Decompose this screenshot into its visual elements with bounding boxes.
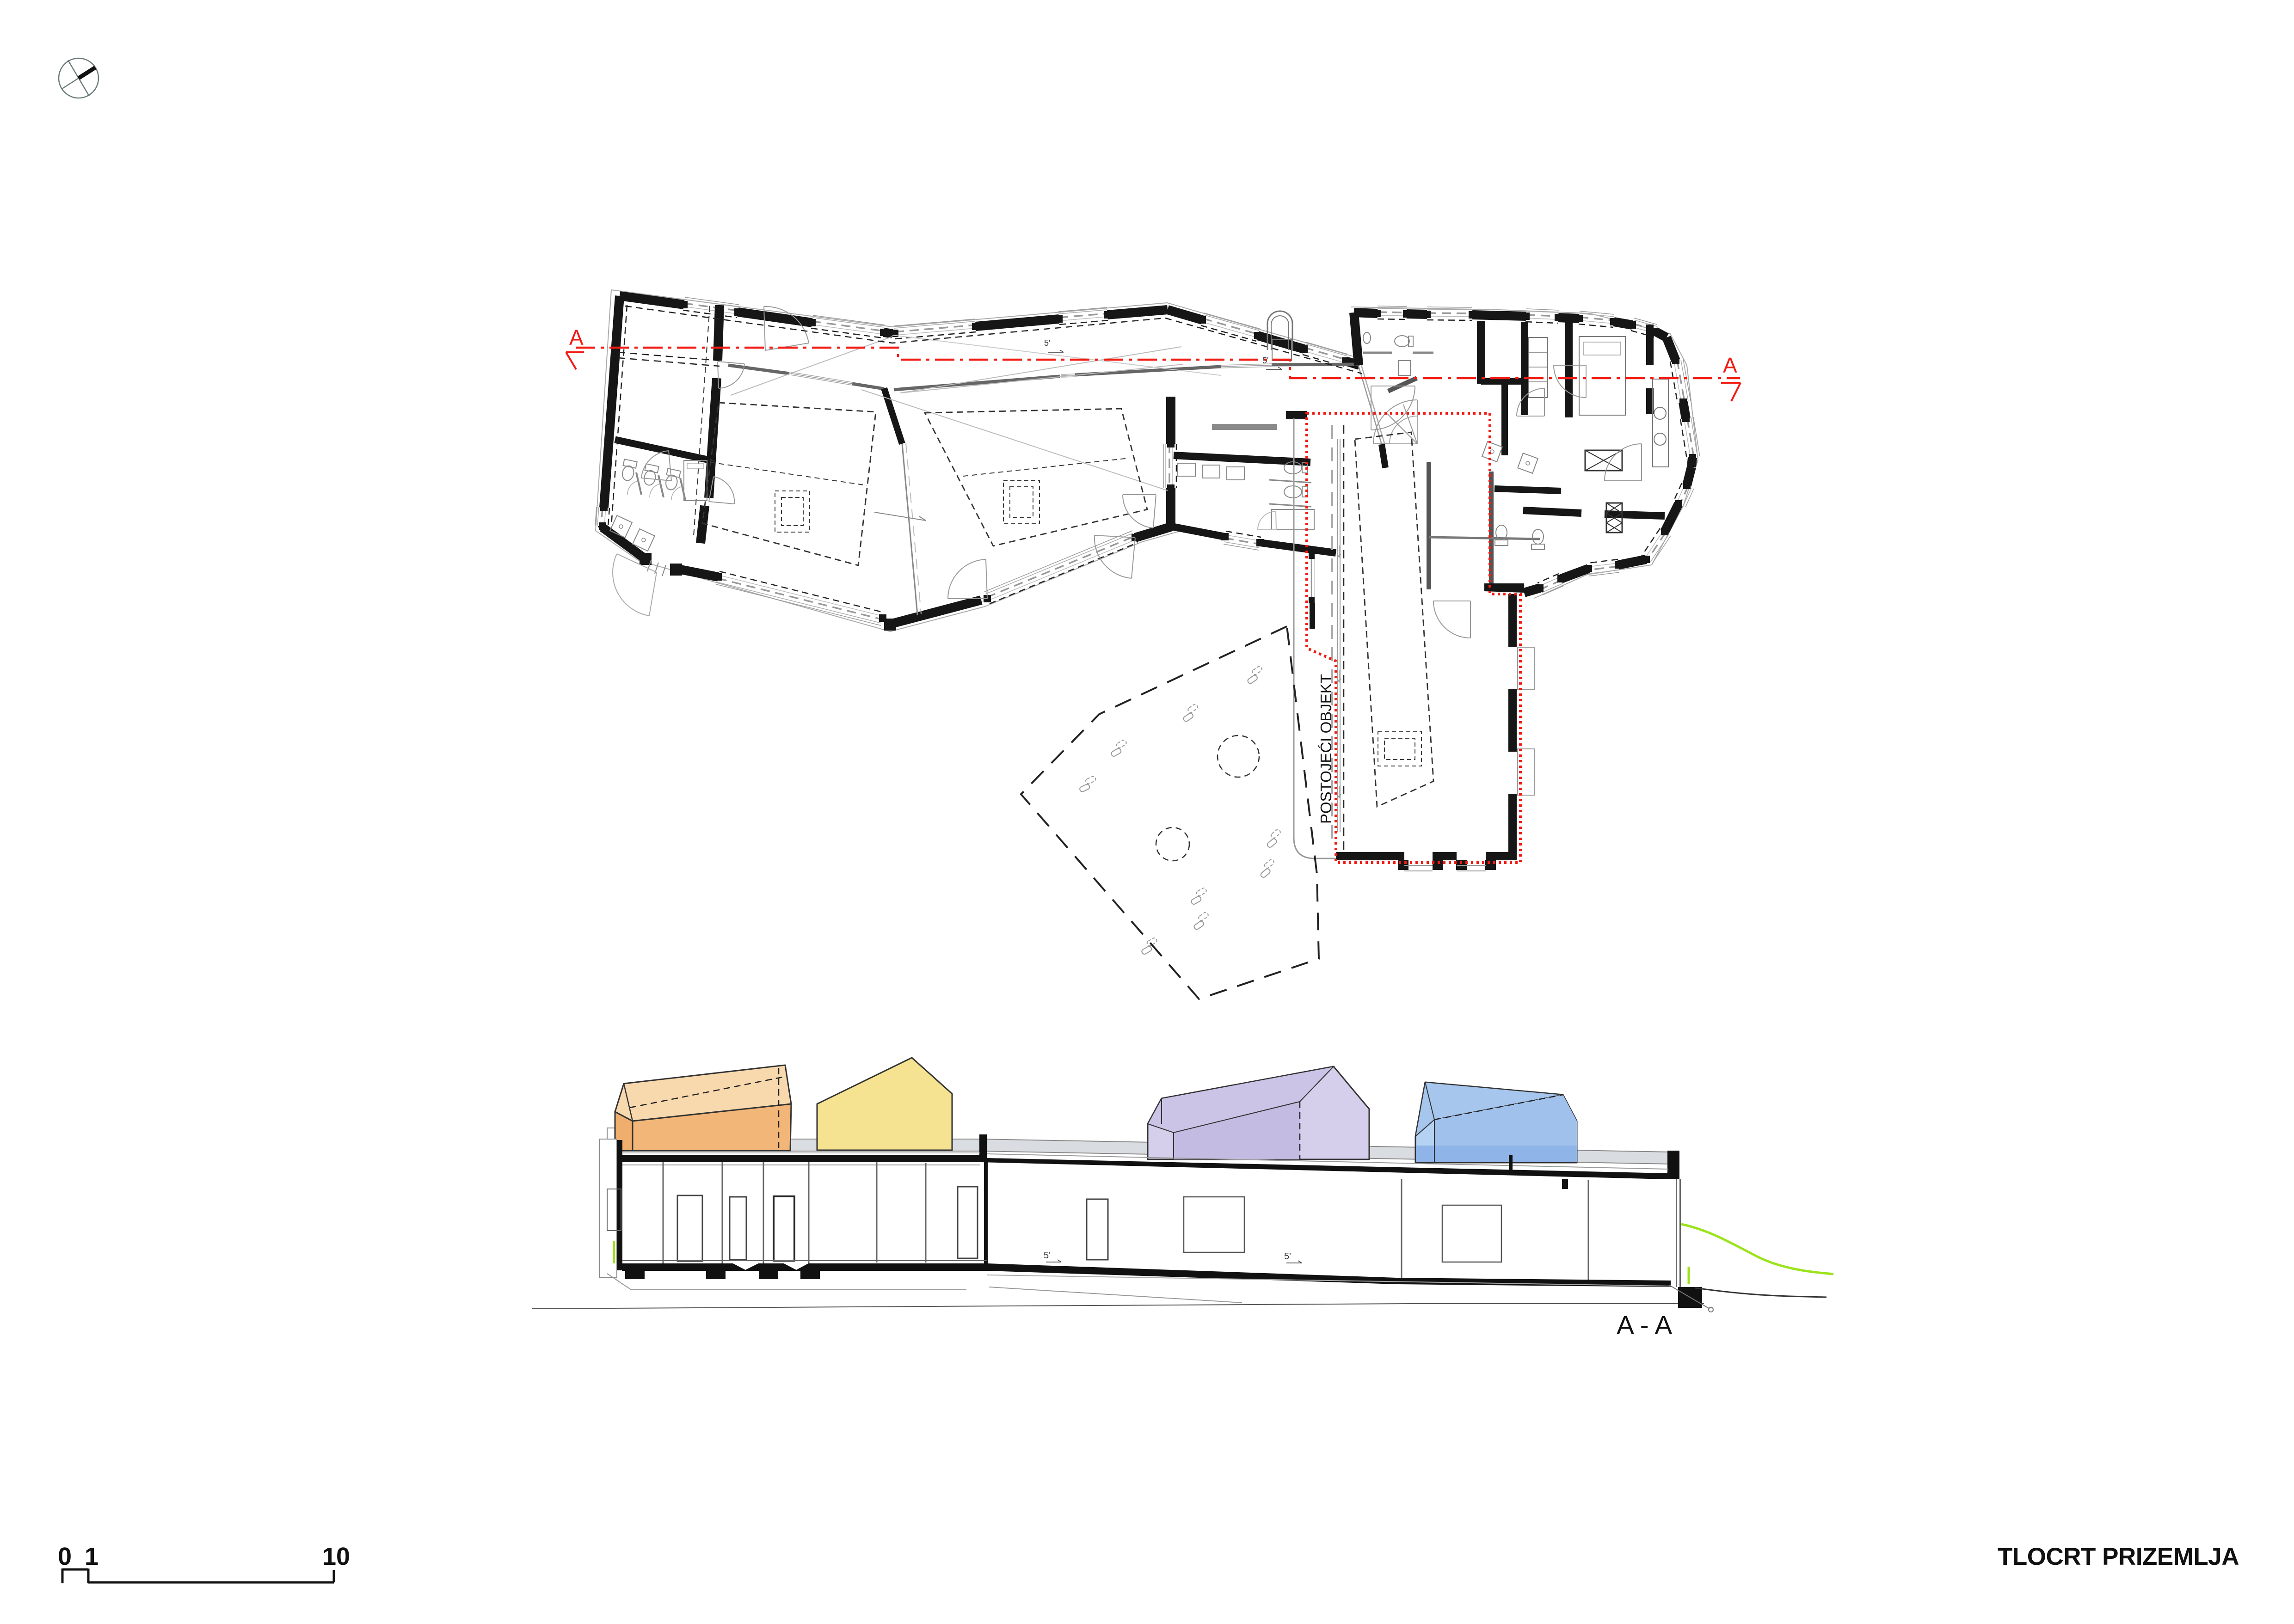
- svg-text:5': 5': [1262, 356, 1268, 365]
- svg-text:10: 10: [322, 1543, 350, 1570]
- svg-text:POSTOJEĆI OBJEKT: POSTOJEĆI OBJEKT: [1317, 674, 1335, 824]
- svg-text:TLOCRT PRIZEMLJA: TLOCRT PRIZEMLJA: [1998, 1543, 2239, 1570]
- svg-text:0: 0: [58, 1543, 72, 1570]
- svg-text:5': 5': [1284, 1251, 1291, 1262]
- svg-text:5': 5': [1044, 1250, 1051, 1261]
- svg-text:A: A: [569, 325, 584, 349]
- svg-text:1: 1: [85, 1543, 98, 1570]
- svg-text:A: A: [1723, 353, 1737, 377]
- svg-text:5': 5': [1044, 338, 1050, 348]
- svg-text:A - A: A - A: [1617, 1311, 1672, 1340]
